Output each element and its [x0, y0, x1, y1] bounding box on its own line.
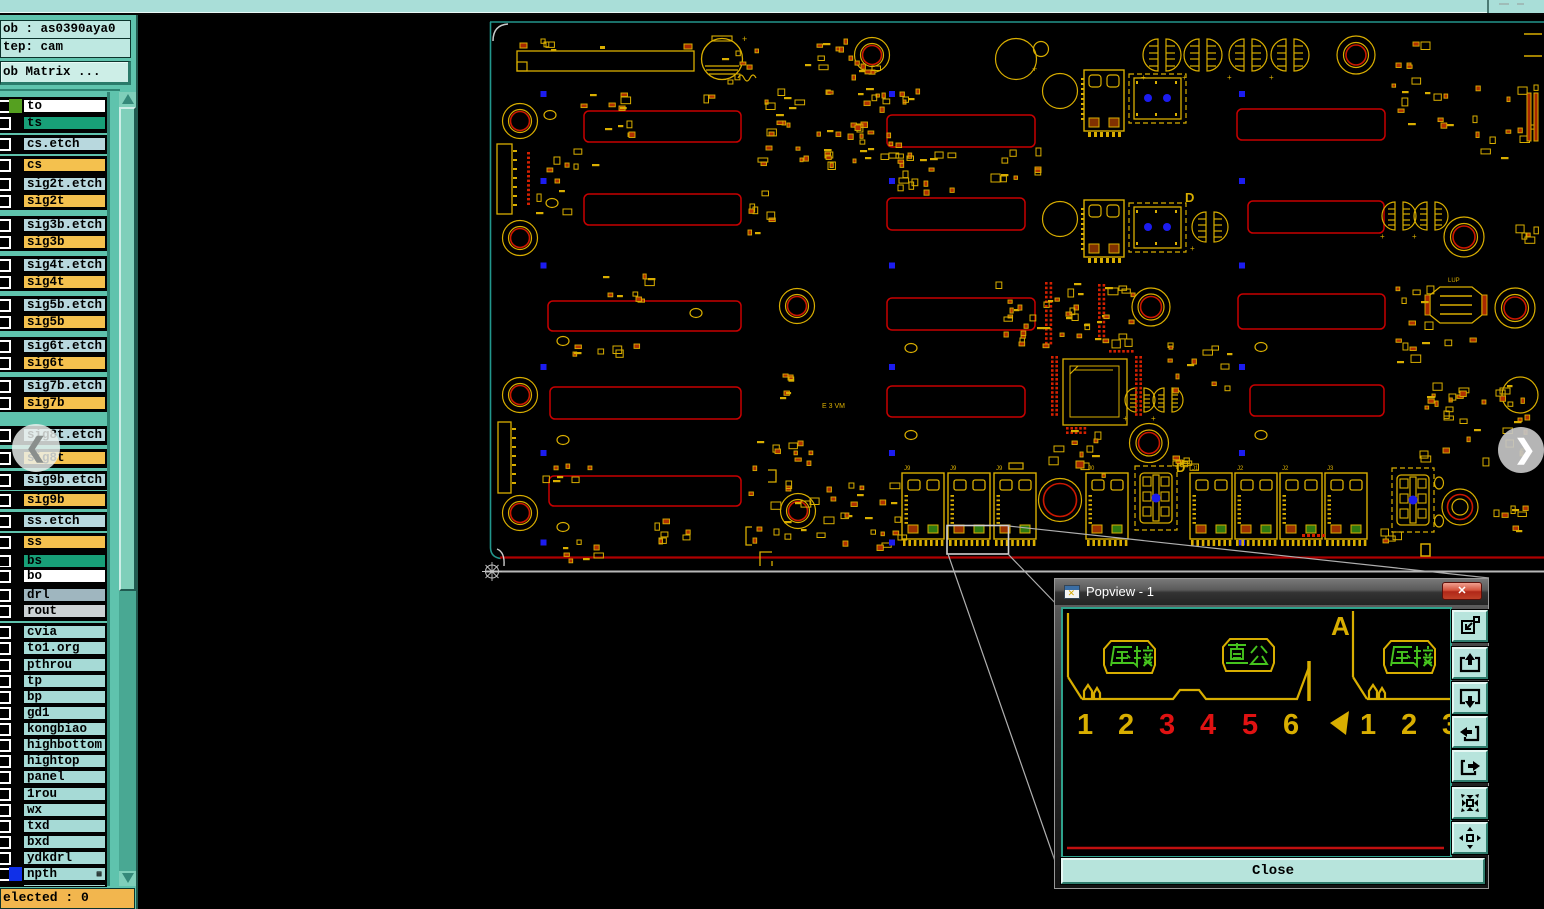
svg-text:LUP: LUP — [1448, 278, 1460, 284]
svg-text:3: 3 — [1442, 709, 1450, 741]
svg-text:J9: J9 — [996, 466, 1003, 472]
svg-text:J9: J9 — [904, 466, 911, 472]
svg-text:J0: J0 — [1088, 466, 1095, 472]
svg-text:E 3 VM: E 3 VM — [822, 403, 845, 410]
svg-text:D: D — [1185, 190, 1194, 205]
svg-text:D: D — [1176, 460, 1185, 475]
svg-text:+: + — [1182, 73, 1187, 82]
svg-text:A: A — [1331, 611, 1350, 641]
svg-text:+: + — [1151, 414, 1156, 423]
svg-text:1: 1 — [1077, 709, 1093, 741]
svg-text:J2: J2 — [1237, 466, 1244, 472]
svg-text:2: 2 — [1118, 709, 1134, 741]
svg-text:3: 3 — [1159, 709, 1175, 741]
svg-text:J9: J9 — [950, 466, 957, 472]
svg-text:+: + — [1141, 73, 1146, 82]
svg-text:+: + — [1227, 73, 1232, 82]
svg-text:6: 6 — [1283, 709, 1299, 741]
svg-text:+: + — [742, 34, 747, 44]
svg-text:+: + — [1190, 244, 1195, 253]
svg-text:+: + — [1380, 232, 1385, 241]
svg-text:4: 4 — [1200, 709, 1216, 741]
svg-text:2: 2 — [1401, 709, 1417, 741]
svg-text:5: 5 — [1242, 709, 1258, 741]
svg-text:+: + — [1412, 232, 1417, 241]
svg-text:J3: J3 — [1327, 466, 1334, 472]
svg-text:1: 1 — [1360, 709, 1376, 741]
svg-text:J1: J1 — [1192, 466, 1199, 472]
svg-text:+: + — [1032, 64, 1037, 74]
svg-text:J2: J2 — [1282, 466, 1289, 472]
svg-text:+: + — [1269, 73, 1274, 82]
